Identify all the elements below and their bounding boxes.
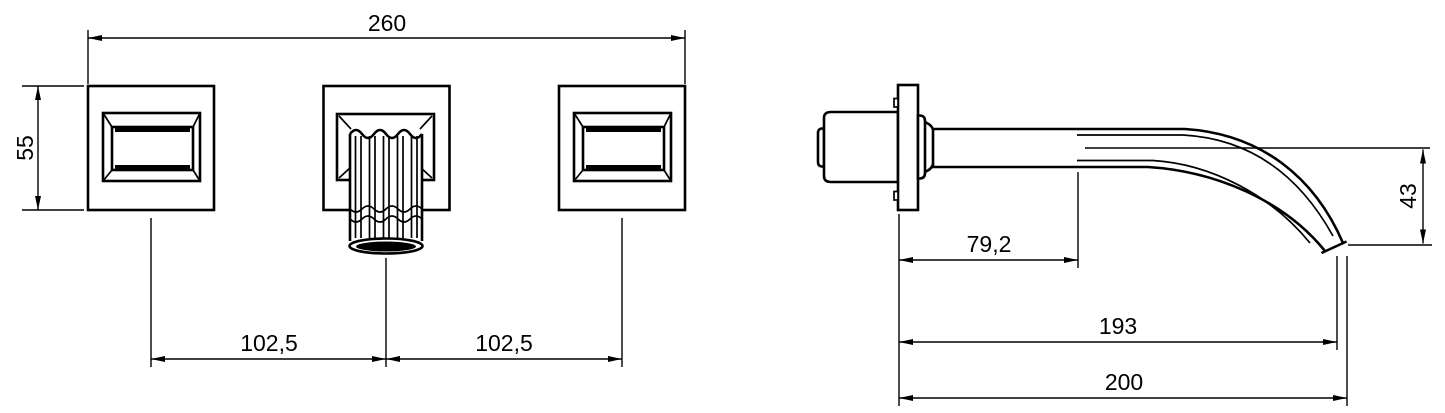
flange-plate [898,85,918,210]
dim-spout-drop-label: 43 [1395,183,1421,209]
cone-stub [918,116,925,179]
handle-shadow-bar [115,165,190,170]
faucet-technical-drawing: 260 55 [0,0,1445,413]
spout-body-side [918,116,1077,179]
dim-left-spacing-label: 102,5 [240,330,298,356]
dim-wall-to-body-end: 79,2 [899,172,1078,406]
dim-spout-drop: 43 [1348,150,1432,246]
dim-wall-to-outlet-label: 193 [1099,313,1137,339]
handle-shadow-bar [115,128,190,133]
side-view: 79,2 43 193 200 [818,85,1432,406]
body-housing [824,112,898,182]
faucet-dimension-drawing-page: 260 55 [0,0,1445,413]
dim-right-spacing-label: 102,5 [475,330,533,356]
outlet-opening [356,242,416,252]
spout-straight-tube [933,129,1077,167]
center-spout-front [324,86,450,254]
left-handle-plate [88,86,214,210]
dim-plate-height: 55 [12,86,84,210]
handle-shadow-bar [586,165,661,170]
in-wall-body [818,112,898,182]
right-handle-plate [559,86,685,210]
flange-notch [894,99,898,108]
dim-overall-width-label: 260 [368,10,406,36]
handle-shadow-bar [586,128,661,133]
spout-tip-face [1322,242,1347,254]
spout-top-wall [1077,129,1343,243]
spout-bottom-wall [1077,167,1325,251]
front-view: 260 55 [12,10,685,367]
dim-wall-to-outlet: 193 [899,256,1337,350]
dim-overall-reach-label: 200 [1105,369,1143,395]
flange-notch [894,192,898,201]
dim-wall-to-body-end-label: 79,2 [967,231,1012,257]
dim-plate-height-label: 55 [12,135,38,161]
left-handle [88,86,214,210]
ribbed-spout-cylinder [350,130,423,254]
dim-overall-width: 260 [88,10,685,84]
wall-flange [894,85,918,210]
right-handle [559,86,685,210]
